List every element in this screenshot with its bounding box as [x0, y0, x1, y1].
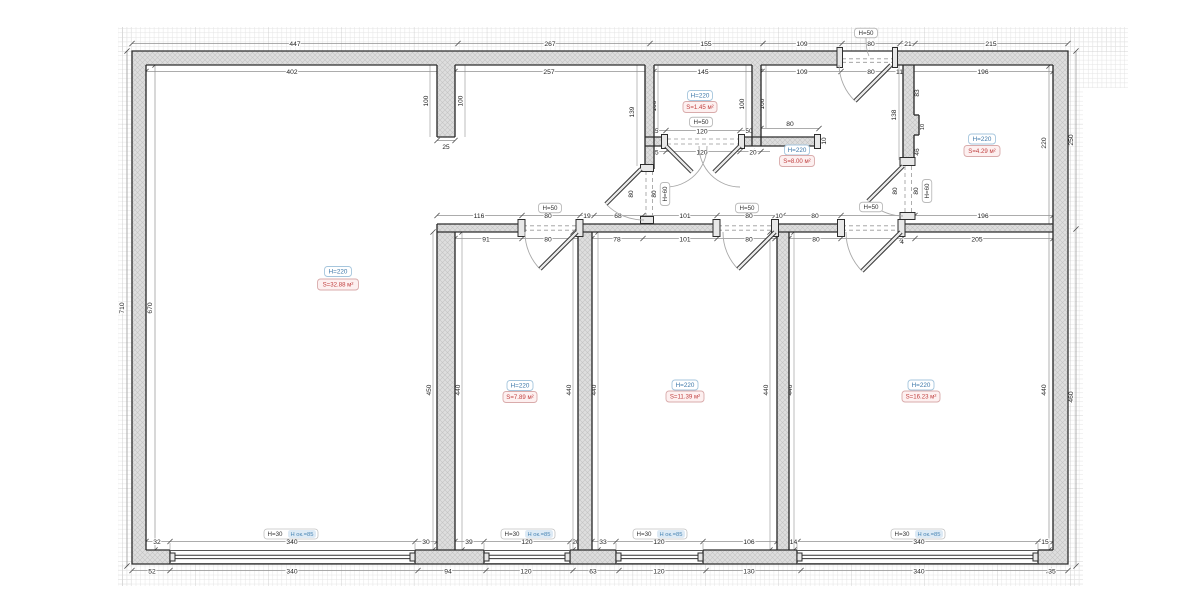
- svg-text:H=220: H=220: [912, 382, 931, 389]
- svg-text:215: 215: [985, 41, 996, 48]
- svg-text:H=220: H=220: [691, 93, 710, 100]
- svg-text:10: 10: [920, 124, 926, 130]
- svg-text:14: 14: [790, 539, 798, 546]
- svg-text:340: 340: [286, 539, 297, 546]
- svg-text:120: 120: [653, 539, 664, 546]
- svg-text:80: 80: [786, 121, 794, 128]
- svg-text:196: 196: [977, 213, 988, 220]
- svg-text:20: 20: [749, 150, 757, 157]
- svg-text:196: 196: [977, 69, 988, 76]
- svg-text:H=50: H=50: [694, 119, 710, 126]
- svg-text:205: 205: [971, 237, 982, 244]
- svg-text:S=16.23 м²: S=16.23 м²: [906, 394, 937, 401]
- svg-text:80: 80: [892, 187, 899, 195]
- svg-text:63: 63: [589, 569, 597, 576]
- svg-text:32: 32: [153, 539, 161, 546]
- svg-text:80: 80: [544, 237, 552, 244]
- svg-text:H ок.=85: H ок.=85: [290, 532, 313, 538]
- svg-text:120: 120: [520, 569, 531, 576]
- svg-text:19: 19: [583, 213, 591, 220]
- svg-text:120: 120: [653, 569, 664, 576]
- svg-text:H=220: H=220: [973, 136, 992, 143]
- svg-text:100: 100: [423, 95, 430, 106]
- svg-text:52: 52: [148, 569, 156, 576]
- svg-text:H ок.=85: H ок.=85: [659, 532, 682, 538]
- svg-text:H ок.=85: H ок.=85: [527, 532, 550, 538]
- svg-text:340: 340: [913, 539, 924, 546]
- svg-text:145: 145: [697, 69, 708, 76]
- svg-text:80: 80: [867, 41, 875, 48]
- svg-text:83: 83: [914, 89, 921, 97]
- svg-text:21: 21: [904, 41, 912, 48]
- svg-text:101: 101: [679, 213, 690, 220]
- svg-text:H=220: H=220: [676, 382, 695, 389]
- svg-text:H=60: H=60: [662, 186, 669, 202]
- svg-text:80: 80: [651, 190, 658, 198]
- svg-text:4: 4: [900, 239, 904, 246]
- svg-text:447: 447: [289, 41, 300, 48]
- svg-text:25: 25: [442, 144, 450, 151]
- svg-text:101: 101: [679, 237, 690, 244]
- svg-text:H=220: H=220: [329, 269, 348, 276]
- svg-text:H=50: H=50: [543, 205, 559, 212]
- svg-text:402: 402: [286, 69, 297, 76]
- svg-text:39: 39: [465, 539, 473, 546]
- svg-text:460: 460: [1068, 391, 1075, 402]
- svg-text:S=8.00 м²: S=8.00 м²: [783, 158, 810, 165]
- svg-text:H=220: H=220: [511, 383, 530, 390]
- svg-text:35: 35: [1048, 569, 1056, 576]
- svg-text:340: 340: [913, 569, 924, 576]
- svg-text:68: 68: [614, 213, 622, 220]
- svg-text:340: 340: [286, 569, 297, 576]
- svg-text:80: 80: [811, 213, 819, 220]
- svg-text:H=30: H=30: [268, 531, 284, 538]
- svg-text:440: 440: [763, 384, 770, 395]
- svg-text:S=32.88 м²: S=32.88 м²: [323, 282, 354, 289]
- svg-text:257: 257: [543, 69, 554, 76]
- svg-text:S=1.45 м²: S=1.45 м²: [686, 104, 713, 111]
- svg-text:116: 116: [474, 213, 485, 220]
- svg-text:H=30: H=30: [637, 531, 653, 538]
- svg-text:80: 80: [544, 213, 552, 220]
- svg-text:450: 450: [426, 384, 433, 395]
- svg-text:250: 250: [1068, 134, 1075, 145]
- svg-text:94: 94: [444, 569, 452, 576]
- svg-text:100: 100: [458, 95, 465, 106]
- svg-text:138: 138: [891, 109, 898, 120]
- svg-text:11: 11: [896, 69, 903, 76]
- svg-text:130: 130: [743, 569, 754, 576]
- svg-text:H=220: H=220: [788, 147, 807, 154]
- svg-text:440: 440: [566, 384, 573, 395]
- svg-text:80: 80: [745, 237, 753, 244]
- svg-text:80: 80: [745, 213, 753, 220]
- svg-text:H=60: H=60: [924, 183, 931, 199]
- svg-text:109: 109: [796, 69, 807, 76]
- svg-text:30: 30: [422, 539, 430, 546]
- svg-text:H ок.=85: H ок.=85: [917, 532, 940, 538]
- svg-text:80: 80: [628, 190, 635, 198]
- svg-text:S=7.89 м²: S=7.89 м²: [506, 394, 533, 401]
- svg-text:46: 46: [914, 148, 921, 156]
- svg-text:80: 80: [812, 237, 820, 244]
- svg-text:220: 220: [1041, 137, 1048, 148]
- svg-text:H=50: H=50: [740, 205, 756, 212]
- svg-text:710: 710: [119, 302, 126, 313]
- svg-text:91: 91: [482, 237, 490, 244]
- svg-text:H=50: H=50: [859, 30, 875, 37]
- svg-text:S=11.39 м²: S=11.39 м²: [670, 394, 700, 401]
- svg-text:100: 100: [739, 98, 746, 109]
- svg-text:440: 440: [1041, 384, 1048, 395]
- svg-text:139: 139: [629, 106, 636, 117]
- svg-text:440: 440: [455, 384, 462, 395]
- svg-text:109: 109: [796, 41, 807, 48]
- svg-text:106: 106: [743, 539, 754, 546]
- svg-text:78: 78: [613, 237, 621, 244]
- svg-text:120: 120: [696, 129, 707, 136]
- svg-text:S=4.29 м²: S=4.29 м²: [968, 148, 995, 155]
- svg-text:H=50: H=50: [864, 204, 880, 211]
- svg-text:267: 267: [544, 41, 555, 48]
- svg-text:33: 33: [599, 539, 607, 546]
- svg-text:670: 670: [147, 302, 154, 313]
- svg-text:H=30: H=30: [895, 531, 911, 538]
- svg-text:10: 10: [821, 137, 828, 145]
- svg-text:15: 15: [1041, 539, 1049, 546]
- svg-text:80: 80: [913, 187, 920, 195]
- svg-text:80: 80: [867, 69, 875, 76]
- svg-text:H=30: H=30: [505, 531, 521, 538]
- svg-text:120: 120: [521, 539, 532, 546]
- svg-text:155: 155: [700, 41, 711, 48]
